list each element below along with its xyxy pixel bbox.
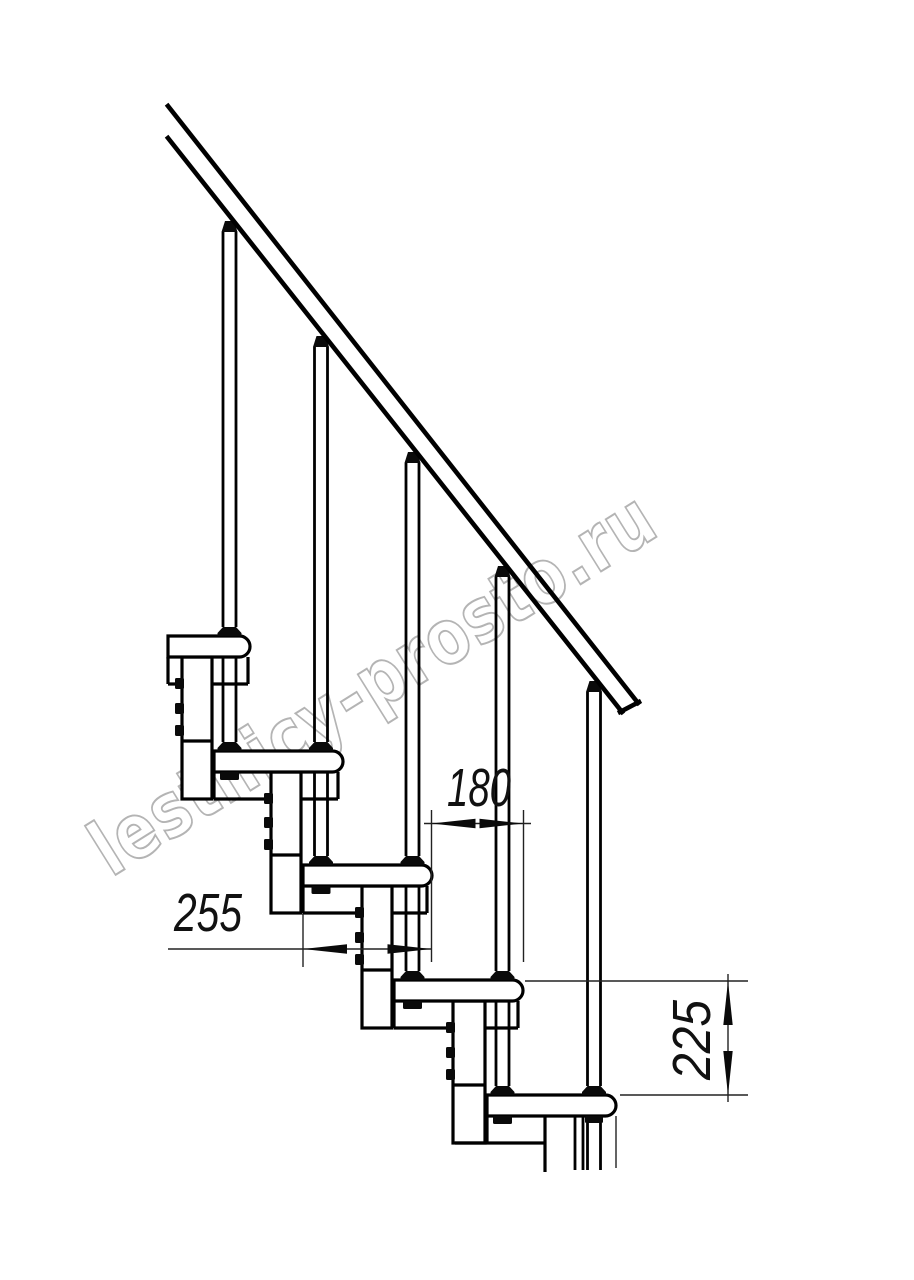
tread-4 — [394, 980, 523, 1001]
baluster-5 — [582, 681, 606, 1095]
strut-foot — [491, 1086, 515, 1095]
bolt-icon — [264, 817, 273, 828]
tread-1 — [168, 636, 250, 657]
bolt-icon — [355, 932, 364, 943]
watermark-text: lestnicy-prosto.ru — [73, 473, 671, 893]
dim-arrow-down — [723, 1051, 732, 1095]
nut-icon — [220, 772, 239, 780]
dim-arrow-left — [432, 819, 476, 828]
bolt-icon — [355, 954, 364, 965]
baluster-1 — [218, 221, 242, 636]
bolt-icon — [175, 678, 184, 689]
bolt-icon — [264, 839, 273, 850]
bolt-icon — [355, 907, 364, 918]
baluster-foot — [491, 971, 515, 980]
bolt-icon — [446, 1047, 455, 1058]
dim-arrow-up — [723, 981, 732, 1025]
dim-arrow-left — [303, 944, 347, 953]
bolt-icon — [446, 1069, 455, 1080]
nut-icon — [585, 1116, 603, 1123]
dimension-step-rise: 225 — [525, 974, 748, 1102]
strut-foot — [401, 971, 425, 980]
bolt-icon — [264, 793, 273, 804]
tread-3 — [303, 865, 432, 886]
baluster-foot — [218, 627, 242, 636]
dimension-step-run-label: 180 — [447, 758, 511, 818]
technical-drawing: lestnicy-prosto.ru — [0, 0, 914, 1280]
baluster-foot — [401, 856, 425, 865]
bolt-icon — [446, 1022, 455, 1033]
bolt-icon — [175, 725, 184, 736]
tread-5 — [487, 1095, 616, 1116]
strut-foot — [309, 856, 333, 865]
nut-icon — [493, 1116, 512, 1124]
baluster-foot — [582, 1086, 606, 1095]
nut-icon — [312, 886, 331, 894]
dimension-tread-depth-label: 255 — [173, 883, 242, 943]
bolt-icon — [175, 703, 184, 714]
nut-icon — [403, 1001, 422, 1009]
tread-2 — [214, 751, 343, 772]
dim-arrow-right — [480, 819, 524, 828]
dimension-step-rise-label: 225 — [662, 999, 722, 1081]
dim-arrow-right — [388, 944, 432, 953]
dimension-step-run: 180 — [424, 758, 531, 962]
